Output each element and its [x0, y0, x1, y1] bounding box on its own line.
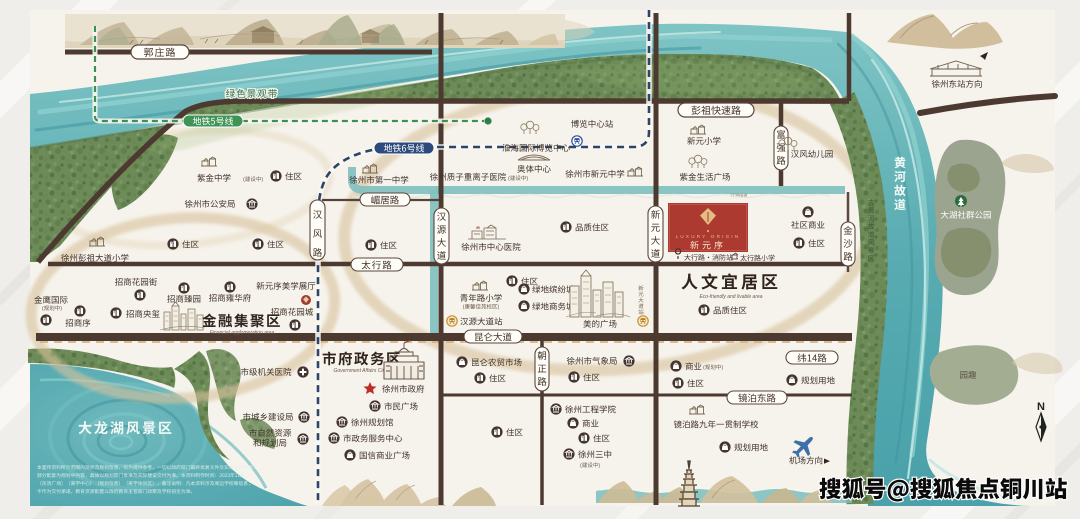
svg-text:品质住区: 品质住区 [713, 305, 748, 317]
svg-text:徐州市气象局: 徐州市气象局 [566, 355, 617, 367]
svg-text:郭庄路: 郭庄路 [144, 44, 177, 59]
svg-text:太行路: 太行路 [361, 258, 393, 272]
svg-text:正: 正 [537, 361, 547, 375]
svg-text:(建设中): (建设中) [243, 175, 263, 183]
svg-text:市民广场: 市民广场 [384, 401, 418, 413]
svg-text:淮海国际博览中心: 淮海国际博览中心 [502, 142, 571, 154]
svg-text:(建设中): (建设中) [508, 174, 528, 182]
svg-text:汉源大道站: 汉源大道站 [460, 316, 503, 328]
svg-text:住区: 住区 [285, 171, 303, 183]
svg-text:纬14路: 纬14路 [797, 351, 827, 365]
svg-text:品质住区: 品质住区 [575, 222, 610, 234]
svg-text:路: 路 [843, 249, 853, 263]
svg-text:紫金生活广场: 紫金生活广场 [679, 171, 730, 183]
svg-text:路: 路 [537, 374, 547, 388]
svg-text:徐州市新元中学: 徐州市新元中学 [565, 168, 625, 180]
svg-text:金: 金 [843, 223, 853, 237]
svg-text:(建设中): (建设中) [580, 461, 600, 469]
svg-text:道: 道 [651, 246, 661, 260]
svg-text:地铁5号线: 地铁5号线 [193, 115, 234, 128]
svg-text:Financial agglomeration area: Financial agglomeration area [210, 330, 275, 336]
svg-text:徐州质子重离子医院: 徐州质子重离子医院 [430, 171, 507, 183]
svg-text:徐州东站方向: 徐州东站方向 [931, 78, 982, 90]
svg-text:市政务服务中心: 市政务服务中心 [343, 433, 403, 445]
svg-text:社区商业: 社区商业 [791, 219, 825, 231]
svg-text:招商序: 招商序 [65, 317, 91, 329]
svg-text:搜狐号@搜狐焦点铜川站: 搜狐号@搜狐焦点铜川站 [819, 472, 1067, 504]
svg-text:住区: 住区 [489, 373, 507, 385]
svg-text:徐州市政府: 徐州市政府 [382, 383, 425, 395]
svg-text:美的广场: 美的广场 [583, 318, 617, 330]
svg-text:徐州三中: 徐州三中 [578, 449, 612, 461]
svg-text:招商花园街: 招商花园街 [115, 276, 158, 288]
svg-text:紫金中学: 紫金中学 [197, 172, 232, 184]
svg-text:朝: 朝 [537, 348, 547, 362]
svg-text:金融集聚区: 金融集聚区 [202, 310, 282, 331]
svg-text:元: 元 [651, 220, 661, 234]
svg-text:(规划中): (规划中) [42, 304, 62, 312]
svg-text:住区: 住区 [583, 372, 601, 384]
svg-text:绿地缤纷城: 绿地缤纷城 [532, 284, 575, 296]
svg-text:新: 新 [651, 207, 661, 221]
svg-text:徐州规划馆: 徐州规划馆 [351, 417, 394, 429]
svg-text:徐州彭祖大道小学: 徐州彭祖大道小学 [61, 252, 130, 264]
svg-text:和规划局: 和规划局 [253, 437, 287, 449]
svg-text:镜泊东路: 镜泊东路 [738, 391, 777, 405]
svg-text:大龙湖风景区: 大龙湖风景区 [78, 418, 174, 438]
svg-text:嵋居路: 嵋居路 [371, 193, 400, 207]
svg-text:道: 道 [894, 196, 906, 213]
svg-text:住区: 住区 [506, 427, 524, 439]
svg-text:市级机关医院: 市级机关医院 [240, 366, 292, 378]
svg-text:机场方向: 机场方向 [789, 455, 823, 467]
svg-text:招商雍华府: 招商雍华府 [209, 292, 252, 304]
svg-text:徐州市第一中学: 徐州市第一中学 [349, 174, 409, 186]
svg-text:住区: 住区 [380, 240, 398, 252]
svg-text:新元小学: 新元小学 [687, 135, 722, 147]
svg-text:（乐活广场）（美学中心）（规划信息）（美学体验区），备注说明: （乐活广场）（美学中心）（规划信息）（美学体验区），备注说明：凡本资料涉及周边学… [37, 480, 253, 487]
svg-text:N: N [1037, 401, 1045, 413]
svg-text:招商臻园: 招商臻园 [167, 293, 201, 305]
svg-text:奥体中心: 奥体中心 [517, 163, 552, 175]
svg-text:昆仑农贸市场: 昆仑农贸市场 [471, 357, 522, 369]
svg-text:徐州市中心医院: 徐州市中心医院 [461, 241, 521, 253]
svg-text:博览中心站: 博览中心站 [571, 118, 614, 130]
svg-text:市城乡建设局: 市城乡建设局 [242, 411, 293, 423]
svg-text:太行路小学: 太行路小学 [740, 254, 775, 264]
svg-text:大行路·消防站: 大行路·消防站 [684, 253, 733, 263]
svg-text:住区: 住区 [267, 239, 285, 251]
svg-text:规划用地: 规划用地 [734, 442, 769, 454]
svg-text:徐州市公安局: 徐州市公安局 [184, 198, 235, 210]
svg-text:区: 区 [868, 254, 875, 264]
svg-text:住区: 住区 [593, 433, 611, 445]
svg-text:规划用地: 规划用地 [801, 375, 836, 387]
svg-text:(规划中): (规划中) [703, 363, 723, 371]
svg-text:富: 富 [776, 127, 786, 141]
svg-text:Eco-friendly and livable area: Eco-friendly and livable area [699, 294, 762, 300]
svg-text:地铁6号线: 地铁6号线 [384, 142, 425, 155]
svg-text:Government Affairs Circle: Government Affairs Circle [333, 368, 390, 374]
svg-text:大湖社群公园: 大湖社群公园 [940, 209, 991, 221]
svg-text:大: 大 [437, 235, 447, 249]
svg-text:汉: 汉 [437, 209, 447, 223]
svg-text:彭祖快速路: 彭祖快速路 [691, 102, 741, 117]
svg-text:住区: 住区 [808, 238, 826, 250]
svg-text:商业: 商业 [582, 418, 599, 430]
svg-text:风: 风 [313, 226, 323, 240]
svg-text:绿地商务城: 绿地商务城 [532, 301, 575, 313]
svg-text:昆仑大道: 昆仑大道 [474, 330, 513, 344]
svg-text:新元序美学展厅: 新元序美学展厅 [256, 280, 316, 292]
svg-text:人文宜居区: 人文宜居区 [681, 268, 781, 293]
svg-text:新元序: 新元序 [690, 239, 726, 252]
svg-text:汉: 汉 [313, 207, 323, 221]
svg-text:不作为交付承诺，教育资源配置以政府教育主管部门政策及学校招生: 不作为交付承诺，教育资源配置以政府教育主管部门政策及学校招生为准。 [37, 488, 195, 495]
svg-text:住区: 住区 [182, 239, 200, 251]
svg-text:绿色景观带: 绿色景观带 [226, 86, 279, 100]
svg-text:大: 大 [651, 233, 661, 247]
svg-text:园趣: 园趣 [959, 369, 977, 381]
svg-text:镜泊路九年一贯制学校: 镜泊路九年一贯制学校 [673, 419, 759, 431]
svg-text:路: 路 [776, 153, 786, 167]
svg-text:(康馨佳苑校区): (康馨佳苑校区) [463, 303, 500, 311]
svg-text:商业: 商业 [685, 361, 702, 373]
svg-text:国信商业广场: 国信商业广场 [359, 450, 410, 462]
svg-text:招商央玺: 招商央玺 [126, 308, 161, 320]
svg-text:住区: 住区 [687, 378, 705, 390]
svg-text:沙: 沙 [843, 236, 853, 250]
svg-text:路: 路 [313, 245, 323, 259]
svg-text:源: 源 [437, 222, 447, 236]
svg-text:部分配套为规划中内容，具体以规划部门批准及实际建设交付为准。: 部分配套为规划中内容，具体以规划部门批准及实际建设交付为准。本资料制作时间：20… [37, 472, 250, 479]
svg-text:站: 站 [638, 308, 644, 316]
svg-text:徐州工程学院: 徐州工程学院 [565, 404, 617, 416]
svg-text:道: 道 [437, 248, 447, 262]
svg-text:汉风幼儿园: 汉风幼儿园 [791, 148, 834, 160]
svg-text:本宣传资料所示范围内现状及规划信息，仅为提供参考，一切以政府: 本宣传资料所示范围内现状及规划信息，仅为提供参考，一切以政府部门最终批复文件及实… [37, 464, 258, 471]
